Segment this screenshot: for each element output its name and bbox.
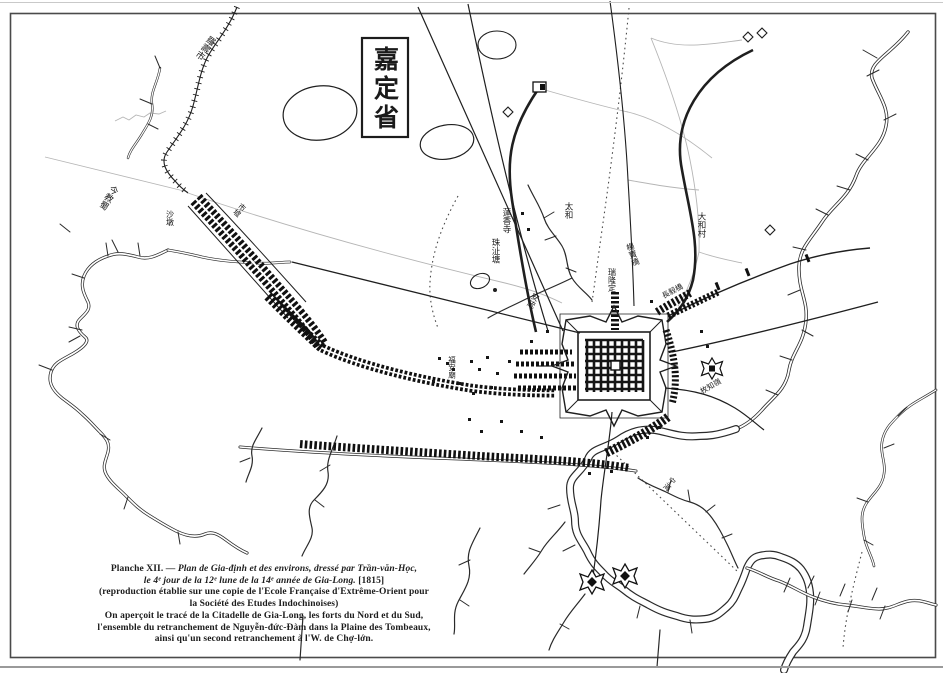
caption-year: [1815] (358, 576, 384, 586)
scan-line-top (0, 2, 943, 3)
caption-line-5: On aperçoit le tracé de la Citadelle de … (88, 611, 440, 623)
map-label: 福安廟 (447, 356, 456, 380)
caption-line-6: l'ensemble du retranchement de Nguyễn-đứ… (88, 623, 440, 635)
caption-line-1: Planche XII. — Plan de Gia-định et des e… (88, 564, 440, 576)
scan-line-bottom (0, 666, 943, 668)
map-label: 大和村 (696, 211, 706, 237)
map-label: 蓮香寺 (501, 207, 511, 233)
title-cartouche: 嘉定省 (362, 38, 408, 137)
map-title: 嘉定省 (371, 46, 401, 133)
map-label: 太和 (563, 201, 573, 220)
caption-map-title-fr: Plan de Gia-định et des environs, dressé… (178, 564, 417, 574)
caption: Planche XII. — Plan de Gia-định et des e… (88, 564, 440, 646)
map-label: 沙墩 (166, 210, 175, 227)
map-label: 珠沚塘 (490, 237, 500, 264)
caption-date-lunar: le 4ᵉ jour de la 12ᵉ lune de la 14ᵉ anné… (144, 576, 356, 586)
caption-plate-number: Planche XII. — (111, 564, 175, 574)
caption-line-4: la Société des Etudes Indochinoises) (88, 599, 440, 611)
map-page: 嘉定省 羅壽市 今教蜀 沙墩 蓮香寺 太和 珠沚塘 安統 瑞隆定 楊寶橋 大和村… (0, 0, 943, 673)
citadel-center (611, 361, 620, 370)
caption-line-7: ainsi qu'un second retranchement à l'W. … (88, 634, 440, 646)
caption-line-2: le 4ᵉ jour de la 12ᵉ lune de la 14ᵉ anné… (88, 576, 440, 588)
caption-line-3: (reproduction établie sur une copie de l… (88, 587, 440, 599)
map-label: 瑞隆定 (608, 267, 617, 293)
watch-tower (533, 82, 546, 92)
